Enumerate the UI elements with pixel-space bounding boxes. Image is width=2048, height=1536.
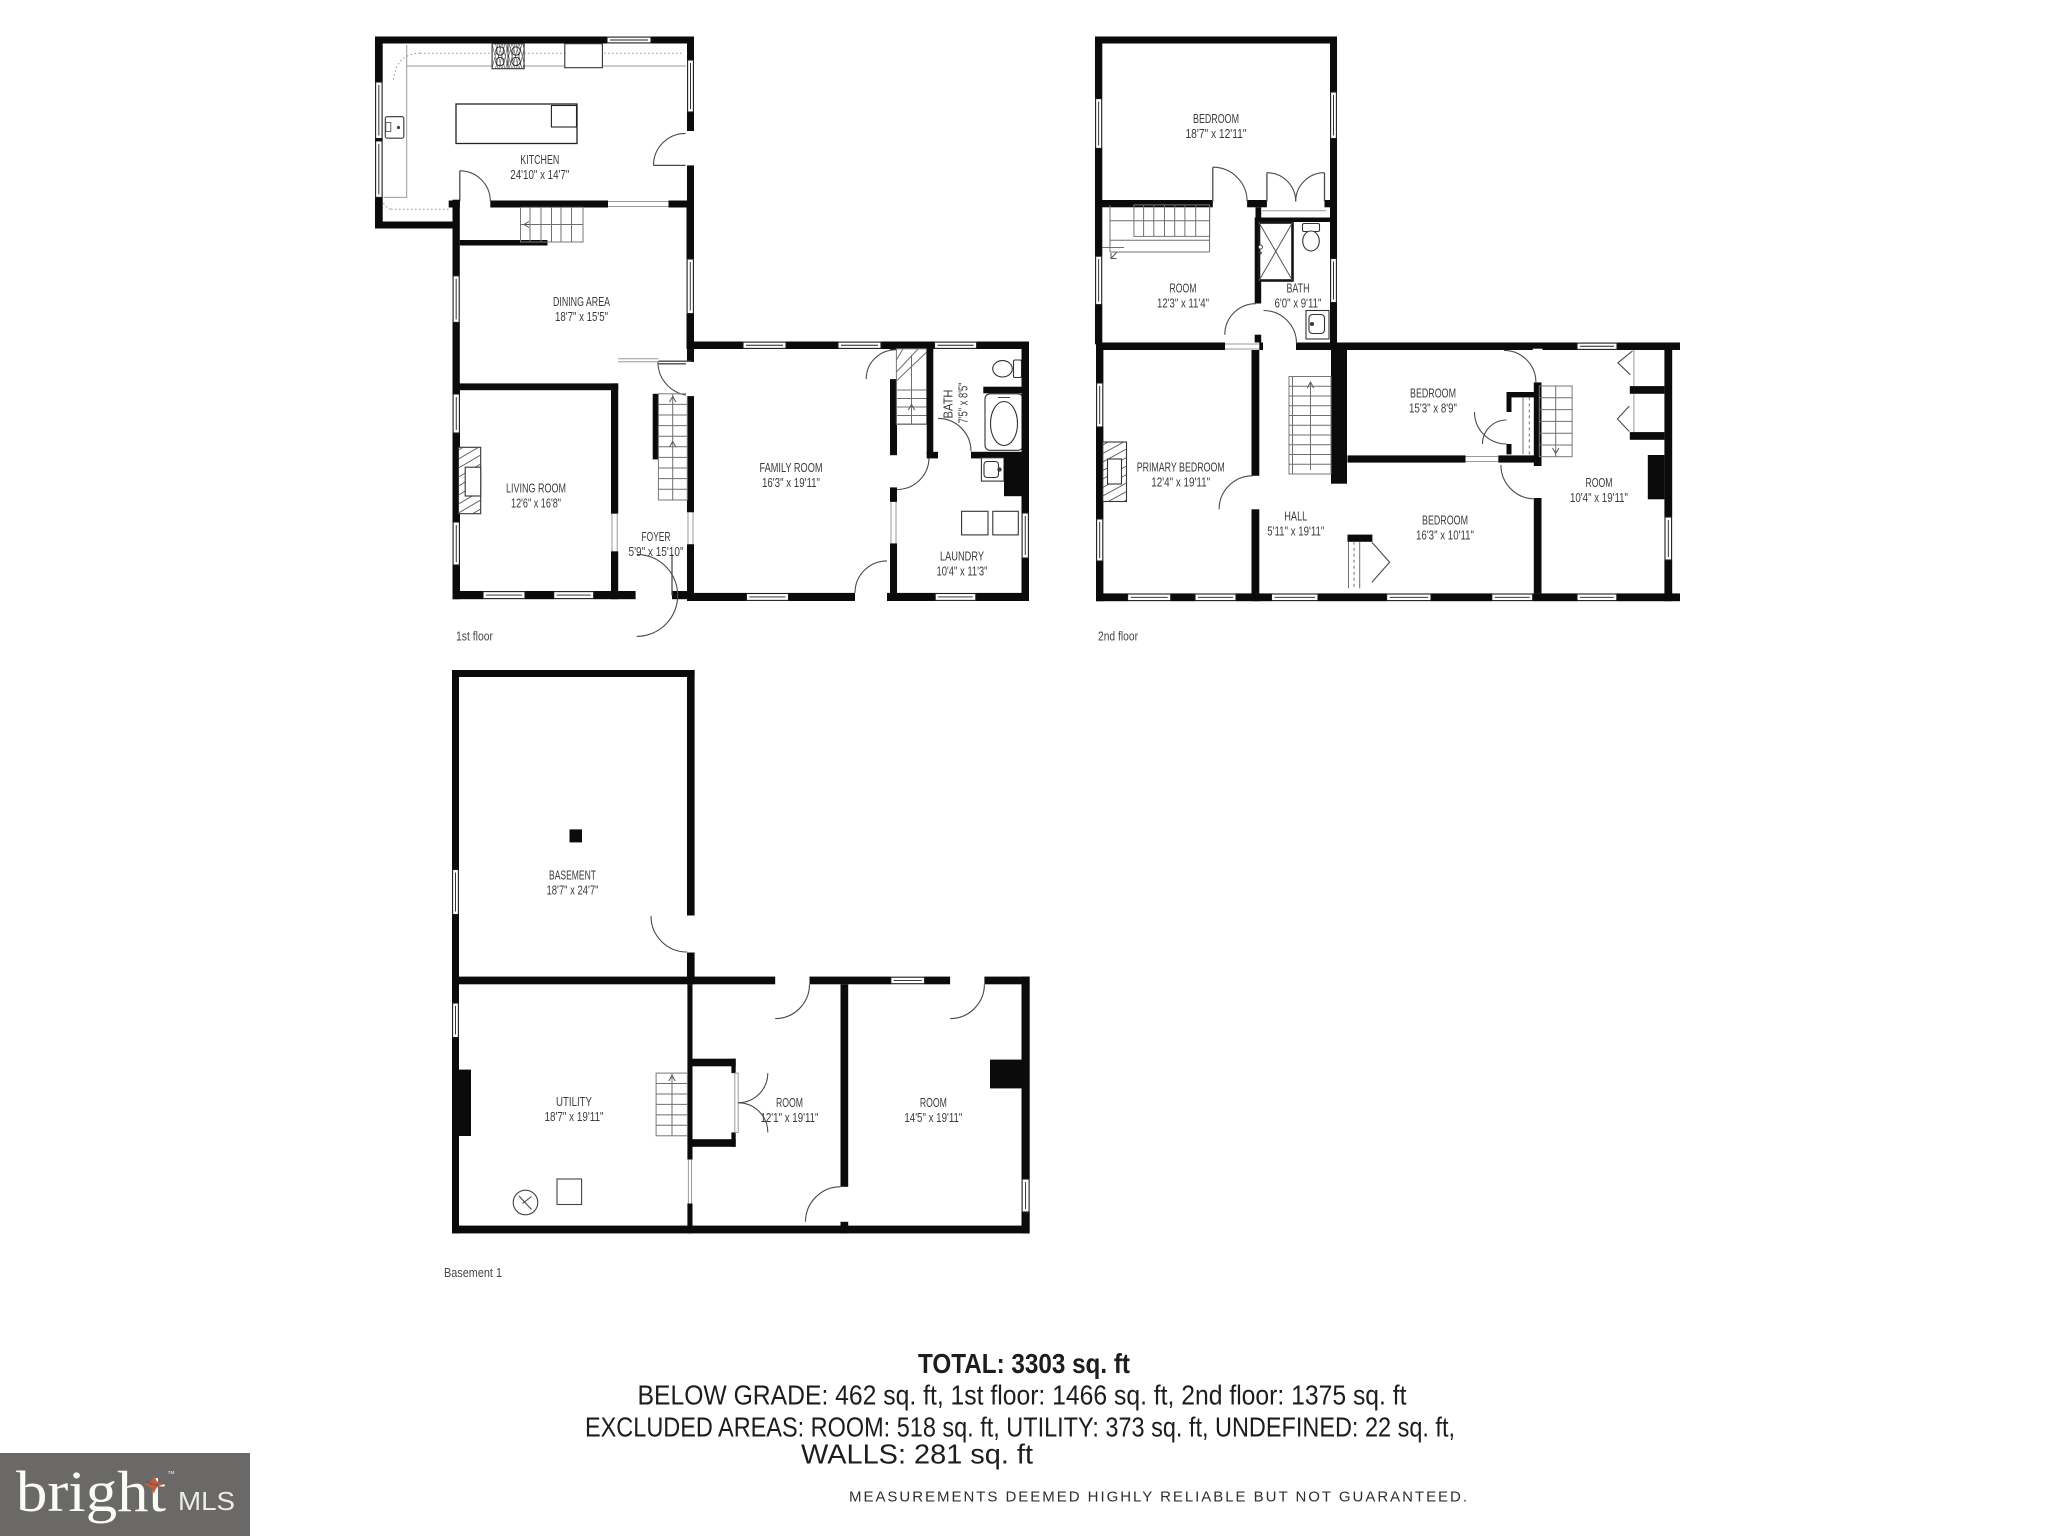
svg-text:™: ™ <box>167 1470 175 1479</box>
svg-text:BEDROOM: BEDROOM <box>1422 513 1468 528</box>
svg-text:2nd floor: 2nd floor <box>1098 629 1139 644</box>
svg-text:ROOM: ROOM <box>776 1095 803 1110</box>
svg-text:24'10" x 14'7": 24'10" x 14'7" <box>510 167 569 182</box>
svg-text:BATH: BATH <box>1287 281 1310 296</box>
svg-text:BELOW GRADE: 462 sq. ft, 1st f: BELOW GRADE: 462 sq. ft, 1st floor: 1466… <box>638 1380 1407 1411</box>
svg-text:FAMILY ROOM: FAMILY ROOM <box>760 460 823 475</box>
svg-text:KITCHEN: KITCHEN <box>520 152 559 167</box>
svg-text:12'1" x 19'11": 12'1" x 19'11" <box>761 1110 819 1125</box>
svg-text:LAUNDRY: LAUNDRY <box>940 549 984 564</box>
svg-text:5'9" x 15'10": 5'9" x 15'10" <box>629 544 684 559</box>
svg-text:18'7" x 12'11": 18'7" x 12'11" <box>1186 126 1247 141</box>
svg-text:15'3" x 8'9": 15'3" x 8'9" <box>1409 401 1457 416</box>
svg-text:16'3" x 19'11": 16'3" x 19'11" <box>762 475 820 490</box>
svg-text:ROOM: ROOM <box>1170 281 1197 296</box>
svg-text:10'4" x 19'11": 10'4" x 19'11" <box>1570 490 1628 505</box>
svg-text:1st floor: 1st floor <box>456 629 494 644</box>
svg-text:DINING AREA: DINING AREA <box>553 294 610 309</box>
svg-text:BATH: BATH <box>941 390 956 419</box>
svg-text:18'7" x 15'5": 18'7" x 15'5" <box>555 309 608 324</box>
svg-text:5'11" x 19'11": 5'11" x 19'11" <box>1267 524 1324 539</box>
svg-text:BEDROOM: BEDROOM <box>1193 111 1239 126</box>
svg-text:ROOM: ROOM <box>920 1095 947 1110</box>
svg-text:Basement 1: Basement 1 <box>444 1265 502 1280</box>
svg-text:10'4" x 11'3": 10'4" x 11'3" <box>937 564 988 579</box>
svg-text:6'0" x 9'11": 6'0" x 9'11" <box>1275 296 1322 311</box>
svg-text:12'4" x 19'11": 12'4" x 19'11" <box>1151 475 1210 490</box>
svg-text:FOYER: FOYER <box>642 529 671 544</box>
svg-text:14'5" x 19'11": 14'5" x 19'11" <box>904 1110 962 1125</box>
svg-text:MEASUREMENTS DEEMED HIGHLY REL: MEASUREMENTS DEEMED HIGHLY RELIABLE BUT … <box>849 1489 1467 1506</box>
svg-text:BASEMENT: BASEMENT <box>549 868 596 883</box>
svg-text:18'7" x 19'11": 18'7" x 19'11" <box>545 1109 604 1124</box>
svg-text:18'7" x 24'7": 18'7" x 24'7" <box>547 883 599 898</box>
svg-text:7'5" x 8'5": 7'5" x 8'5" <box>956 382 971 423</box>
svg-text:WALLS: 281 sq. ft: WALLS: 281 sq. ft <box>801 1439 1033 1470</box>
svg-text:12'3" x 11'4": 12'3" x 11'4" <box>1157 296 1209 311</box>
svg-text:16'3" x 10'11": 16'3" x 10'11" <box>1416 528 1474 543</box>
svg-text:HALL: HALL <box>1284 509 1307 524</box>
svg-text:BEDROOM: BEDROOM <box>1410 386 1456 401</box>
svg-text:12'6" x 16'8": 12'6" x 16'8" <box>511 496 561 511</box>
svg-text:bright: bright <box>16 1459 166 1524</box>
svg-text:PRIMARY BEDROOM: PRIMARY BEDROOM <box>1137 460 1225 475</box>
svg-text:ROOM: ROOM <box>1586 475 1613 490</box>
svg-text:LIVING ROOM: LIVING ROOM <box>506 481 566 496</box>
svg-text:MLS: MLS <box>178 1486 235 1516</box>
svg-text:UTILITY: UTILITY <box>556 1094 592 1109</box>
svg-text:TOTAL: 3303 sq. ft: TOTAL: 3303 sq. ft <box>918 1348 1130 1379</box>
